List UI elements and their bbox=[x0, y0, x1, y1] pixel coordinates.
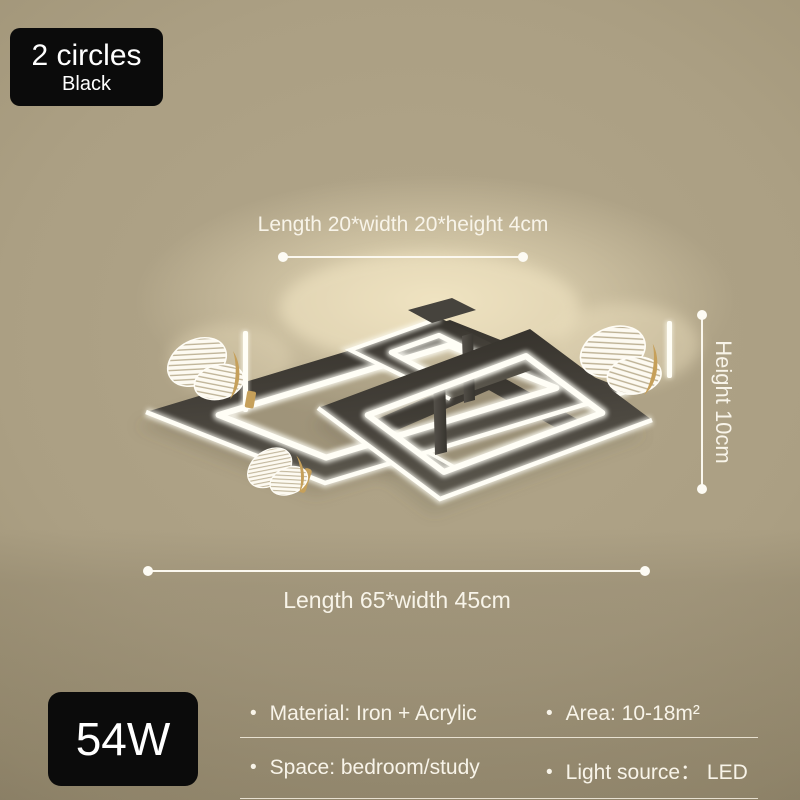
product-image: 2 circles Black Length 20*width 20*heigh… bbox=[0, 0, 800, 800]
spec-light-source-label: Light source： LED bbox=[566, 756, 748, 786]
dimension-dot bbox=[697, 484, 707, 494]
ceiling-lamp-photo bbox=[0, 0, 800, 800]
dimension-dot bbox=[518, 252, 528, 262]
dimension-top-label: Length 20*width 20*height 4cm bbox=[258, 213, 549, 237]
bullet-icon: • bbox=[546, 703, 553, 725]
spec-space: • Space: bedroom/study bbox=[240, 756, 544, 786]
variant-title: 2 circles bbox=[31, 41, 141, 71]
dimension-bottom-label: Length 65*width 45cm bbox=[283, 587, 511, 614]
dimension-dot bbox=[640, 566, 650, 576]
dimension-height-line bbox=[701, 315, 703, 489]
spec-light-source: • Light source： LED bbox=[544, 756, 758, 786]
spec-area-label: Area: 10-18m² bbox=[566, 702, 700, 726]
spec-space-label: Space: bedroom/study bbox=[270, 756, 480, 780]
spec-material: • Material: Iron + Acrylic bbox=[240, 702, 544, 726]
spec-row: • Material: Iron + Acrylic • Area: 10-18… bbox=[240, 698, 758, 738]
variant-badge: 2 circles Black bbox=[10, 28, 163, 106]
spec-list: • Material: Iron + Acrylic • Area: 10-18… bbox=[240, 698, 758, 799]
dimension-height-label: Height 10cm bbox=[710, 340, 736, 464]
spec-area: • Area: 10-18m² bbox=[544, 702, 758, 726]
bullet-icon: • bbox=[250, 703, 257, 725]
dimension-dot bbox=[697, 310, 707, 320]
bullet-icon: • bbox=[546, 762, 553, 784]
bullet-icon: • bbox=[250, 757, 257, 779]
power-badge: 54W bbox=[48, 692, 198, 786]
power-label: 54W bbox=[76, 712, 171, 766]
spec-row: • Space: bedroom/study • Light source： L… bbox=[240, 738, 758, 799]
variant-color: Black bbox=[62, 74, 111, 94]
dimension-dot bbox=[278, 252, 288, 262]
dimension-top-line bbox=[283, 256, 523, 258]
dimension-bottom-line bbox=[148, 570, 645, 572]
dimension-dot bbox=[143, 566, 153, 576]
spec-material-label: Material: Iron + Acrylic bbox=[270, 702, 477, 726]
